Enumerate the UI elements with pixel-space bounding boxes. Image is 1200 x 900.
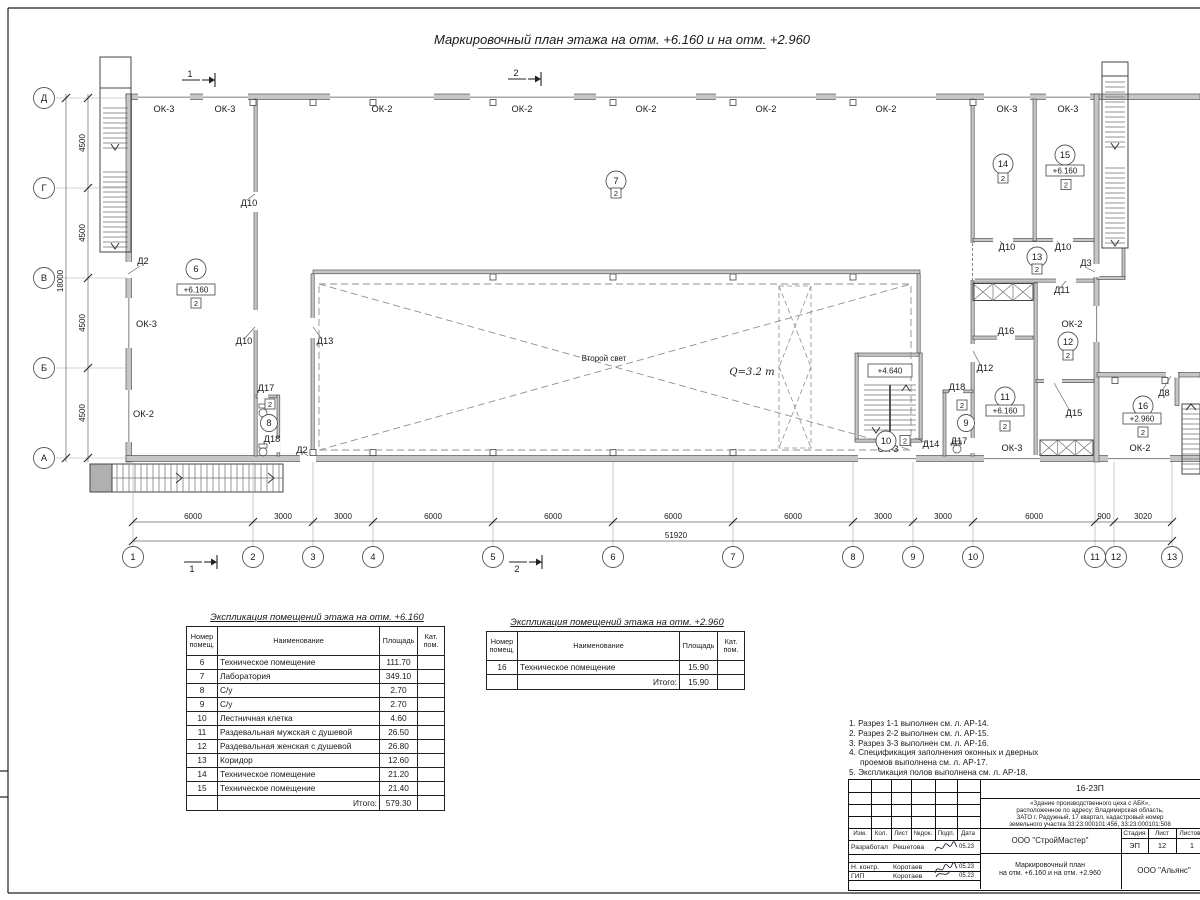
window-label: ОК-3 [997, 104, 1018, 114]
cell: 13 [187, 754, 218, 768]
cell: 2.70 [380, 684, 418, 698]
table-title: Экспликация помещений этажа на отм. +2.9… [486, 617, 748, 628]
cell [418, 796, 445, 811]
cell [187, 796, 218, 811]
grid-axis: 11 [1090, 552, 1100, 562]
col-header-name: Наименование [518, 632, 680, 661]
table-row: 12Раздевальная женская с душевой26.80 [187, 740, 445, 754]
section-mark: 1 [189, 564, 194, 574]
crane-capacity-label: Q=3.2 т [729, 367, 774, 378]
room-schedule-2960: Экспликация помещений этажа на отм. +2.9… [486, 617, 748, 690]
grid-axis: 9 [910, 552, 915, 562]
door-leaders [128, 194, 1171, 456]
col-header-name: Наименование [218, 627, 380, 656]
cell: 15.90 [680, 661, 718, 675]
cell [718, 675, 745, 690]
cell: 8 [187, 684, 218, 698]
dimension: 6000 [664, 512, 682, 521]
window-label: ОК-2 [876, 104, 897, 114]
window-label: ОК-3 [154, 104, 175, 114]
cell: Раздевальная мужская с душевой [218, 726, 380, 740]
table-row: 10Лестничная клетка4.60 [187, 712, 445, 726]
tb-date: 05.23 [959, 873, 974, 881]
second-light-label: Второй свет [582, 354, 627, 363]
col-header-area: Площадь [380, 627, 418, 656]
grid-axis: В [41, 273, 47, 283]
room-category: 2 [268, 400, 272, 409]
cell [418, 740, 445, 754]
room-elevation: +6.160 [1053, 167, 1078, 176]
cell: 11 [187, 726, 218, 740]
dimension: 3000 [274, 512, 292, 521]
tb-org2: ООО "Альянс" [1137, 867, 1191, 875]
window-label: ОК-2 [636, 104, 657, 114]
door-label: Д12 [977, 363, 994, 373]
grid-axis: 6 [610, 552, 615, 562]
room-category: 2 [1003, 422, 1007, 431]
tb-name: Коротаев [893, 873, 922, 881]
grid-axis: 10 [968, 552, 978, 562]
room-category: 2 [194, 299, 198, 308]
cell: 15 [187, 782, 218, 796]
grid-axis: Г [41, 183, 46, 193]
room-category: 2 [903, 436, 907, 445]
tb-org1: ООО "СтройМастер" [1011, 837, 1088, 845]
tb-sheet-header: Лист [1155, 830, 1169, 838]
room-category: 2 [1141, 428, 1145, 437]
door-label: Д8 [1158, 388, 1169, 398]
tb-sheets-value: 1 [1190, 842, 1194, 850]
dimension: 900 [1097, 512, 1111, 521]
dimension: 6000 [784, 512, 802, 521]
grid-axis: 5 [490, 552, 495, 562]
drawing-sheet: Маркировочный план этажа на отм. +6.160 … [0, 0, 1200, 900]
cell: Техническое помещение [218, 656, 380, 670]
tb-col-list: Лист [894, 830, 908, 838]
tb-sheet-value: 12 [1158, 842, 1166, 850]
door-label: Д17 [258, 383, 275, 393]
table-row: 7Лаборатория349.10 [187, 670, 445, 684]
cell: 21.40 [380, 782, 418, 796]
col-header-num: Номер помещ. [487, 632, 518, 661]
tb-col-data: Дата [961, 830, 975, 838]
cell: Техническое помещение [218, 782, 380, 796]
room-elevation: +6.160 [184, 286, 209, 295]
room-category: 2 [1066, 351, 1070, 360]
tb-col-ndok: №док. [914, 830, 932, 838]
col-header-cat: Кат. пом. [418, 627, 445, 656]
tb-name: Решетова [893, 844, 924, 852]
table-row: 16Техническое помещение15.90 [487, 661, 745, 675]
cell: 12.60 [380, 754, 418, 768]
cell: Техническое помещение [218, 768, 380, 782]
grid-axis: Д [41, 93, 48, 103]
room-category: 2 [960, 401, 964, 410]
notes-list: 1. Разрез 1-1 выполнен см. л. АР-14. 2. … [849, 719, 1179, 778]
tb-name: Коротаев [893, 864, 922, 872]
exterior-stair-bottom-right [1182, 404, 1200, 474]
door-labels: Д2 Д10 Д10 Д13 Д17 Д18 Д2 Д14 Д18 Д17 Д1… [137, 198, 1169, 455]
exterior-stair-bottom-left [90, 464, 283, 492]
table-total-row: Итого:579.30 [187, 796, 445, 811]
col-header-cat: Кат. пом. [718, 632, 745, 661]
table-title: Экспликация помещений этажа на отм. +6.1… [186, 612, 448, 623]
internal-stair-10: +4.640 [864, 364, 916, 433]
cell [418, 656, 445, 670]
dimension: 6000 [424, 512, 442, 521]
window-label: ОК-3 [1058, 104, 1079, 114]
door-label: Д10 [999, 242, 1016, 252]
door-label: Д10 [1055, 242, 1072, 252]
room-category: 2 [1001, 174, 1005, 183]
room-number: 6 [193, 264, 198, 274]
title-block: Изм. Кол. Лист №док. Подп. Дата Разработ… [848, 779, 1200, 891]
tb-drawing-name-line: Маркировочный план [1015, 862, 1085, 870]
room-category: 2 [614, 189, 618, 198]
door-label: Д15 [1066, 408, 1083, 418]
cell [418, 782, 445, 796]
dimension: 3000 [934, 512, 952, 521]
door-label: Д2 [296, 445, 307, 455]
grid-axis: 7 [730, 552, 735, 562]
room-category: 2 [1035, 265, 1039, 274]
dimension: 6000 [1025, 512, 1043, 521]
cell: 10 [187, 712, 218, 726]
window-label: ОК-3 [136, 319, 157, 329]
col-header-area: Площадь [680, 632, 718, 661]
tb-role: Разработал [851, 844, 888, 852]
total-label: Итого: [518, 675, 680, 690]
grid-axis: 1 [130, 552, 135, 562]
note-line: 5. Экспликация полов выполнена см. л. АР… [849, 768, 1179, 778]
window-label: ОК-2 [512, 104, 533, 114]
cell: С/у [218, 698, 380, 712]
pilaster-marks [250, 100, 1168, 456]
col-header-num: Номер помещ. [187, 627, 218, 656]
tb-col-izm: Изм. [853, 830, 867, 838]
grid-axis: А [41, 453, 48, 463]
window-label: ОК-2 [1062, 319, 1083, 329]
cell [418, 726, 445, 740]
tb-project-desc-line: земельного участка 33:23:000101:456, 33:… [1009, 821, 1171, 829]
tb-stage-header: Стадия [1123, 830, 1145, 838]
grid-axis: 4 [370, 552, 375, 562]
cell: Раздевальная женская с душевой [218, 740, 380, 754]
grid-axis: Б [41, 363, 47, 373]
room-number: 11 [1000, 392, 1010, 402]
cell: 111.70 [380, 656, 418, 670]
note-line: 2. Разрез 2-2 выполнен см. л. АР-15. [849, 729, 1179, 739]
tb-col-podp: Подп. [938, 830, 955, 838]
window-label: ОК-2 [133, 409, 154, 419]
tb-stage-value: ЭП [1129, 842, 1140, 850]
cell: 21.20 [380, 768, 418, 782]
exterior-walls [126, 94, 1200, 462]
signature [933, 860, 958, 880]
dimension: 4500 [78, 404, 87, 422]
door-label: Д16 [998, 326, 1015, 336]
grid-axis: 8 [850, 552, 855, 562]
cell: 12 [187, 740, 218, 754]
stair-elevation-label: +4.640 [878, 367, 903, 376]
table-row: 13Коридор12.60 [187, 754, 445, 768]
room-elevation: +6.160 [993, 407, 1018, 416]
grid-axis: 3 [310, 552, 315, 562]
room-number: 10 [881, 436, 891, 446]
cell [418, 670, 445, 684]
stair-tower-right [1102, 62, 1128, 248]
cell: 14 [187, 768, 218, 782]
room-number: 14 [998, 159, 1008, 169]
cell [418, 768, 445, 782]
table-row: 14Техническое помещение21.20 [187, 768, 445, 782]
total-value: 15.90 [680, 675, 718, 690]
door-label: Д10 [236, 336, 253, 346]
room-category: 2 [1064, 180, 1068, 189]
table-row: 15Техническое помещение21.40 [187, 782, 445, 796]
room-schedule-6160: Экспликация помещений этажа на отм. +6.1… [186, 612, 448, 811]
cell [418, 754, 445, 768]
cell: Лестничная клетка [218, 712, 380, 726]
door-label: Д10 [241, 198, 258, 208]
cell: Коридор [218, 754, 380, 768]
table-row: 8С/у2.70 [187, 684, 445, 698]
door-label: Д13 [317, 336, 334, 346]
room-number: 7 [613, 176, 618, 186]
cell: С/у [218, 684, 380, 698]
table-row: 11Раздевальная мужская с душевой26.50 [187, 726, 445, 740]
window-label: ОК-3 [215, 104, 236, 114]
window-label: ОК-3 [1002, 443, 1023, 453]
tb-sheets-header: Листов [1179, 830, 1200, 838]
cell [418, 712, 445, 726]
dimension: 6000 [544, 512, 562, 521]
cell: 16 [487, 661, 518, 675]
cell [418, 698, 445, 712]
dimension: 3020 [1134, 512, 1152, 521]
dimension: 6000 [184, 512, 202, 521]
dimension: 4500 [78, 224, 87, 242]
cell [487, 675, 518, 690]
section-marks: 1 2 1 2 [182, 68, 542, 574]
drawing-title: Маркировочный план этажа на отм. +6.160 … [434, 32, 811, 47]
cell: Техническое помещение [518, 661, 680, 675]
room-number: 15 [1060, 150, 1070, 160]
tb-role: Н. контр. [851, 864, 879, 872]
tb-role: ГИП [851, 873, 864, 881]
tb-doc-number: 16-23П [1076, 785, 1104, 793]
table-row: 6Техническое помещение111.70 [187, 656, 445, 670]
note-line: проемов выполнена см. л. АР-17. [849, 758, 1179, 768]
door-label: Д2 [137, 256, 148, 266]
room-number: 8 [266, 418, 271, 428]
note-line: 4. Спецификация заполнения оконных и две… [849, 748, 1179, 758]
cell: 4.60 [380, 712, 418, 726]
door-label: Д17 [951, 436, 968, 446]
room-number: 13 [1032, 252, 1042, 262]
crane-zone [779, 286, 811, 448]
section-mark: 2 [514, 564, 519, 574]
signature [933, 840, 958, 855]
section-mark: 2 [513, 68, 518, 78]
room-number: 12 [1063, 337, 1073, 347]
room-elevation: +2.960 [1130, 415, 1155, 424]
cell: Лаборатория [218, 670, 380, 684]
cell: 2.70 [380, 698, 418, 712]
window-label: ОК-2 [756, 104, 777, 114]
table-total-row: Итого:15.90 [487, 675, 745, 690]
room-number: 9 [963, 418, 968, 428]
cell: 26.80 [380, 740, 418, 754]
dimension-total: 18000 [56, 269, 65, 292]
grid-axis: 13 [1167, 552, 1177, 562]
cell [718, 661, 745, 675]
second-light-area: Второй свет Q=3.2 т [319, 284, 911, 450]
total-value: 579.30 [380, 796, 418, 811]
note-line: 1. Разрез 1-1 выполнен см. л. АР-14. [849, 719, 1179, 729]
dimension: 3000 [874, 512, 892, 521]
table-row: 9С/у2.70 [187, 698, 445, 712]
grid-axis: 2 [250, 552, 255, 562]
door-label: Д14 [923, 439, 940, 449]
door-label: Д11 [1054, 285, 1070, 295]
tb-col-kol: Кол. [875, 830, 887, 838]
cell: 349.10 [380, 670, 418, 684]
tb-date: 05.23 [959, 864, 974, 872]
tb-drawing-name-line: на отм. +6.160 и на отм. +2.960 [999, 870, 1101, 878]
door-label: Д18 [264, 434, 281, 444]
cell: 7 [187, 670, 218, 684]
dimension: 3000 [334, 512, 352, 521]
room-markers: 6 +6.160 2 7 2 2 8 2 9 10 2 11 +6.160 2 … [177, 145, 1161, 451]
tb-date: 05.23 [959, 844, 974, 852]
room-number: 16 [1138, 401, 1148, 411]
cell: 26.50 [380, 726, 418, 740]
cell: 9 [187, 698, 218, 712]
grid-axis: 12 [1111, 552, 1121, 562]
dimension: 4500 [78, 134, 87, 152]
door-label: Д3 [1080, 258, 1091, 268]
door-label: Д18 [949, 382, 966, 392]
note-line: 3. Разрез 3-3 выполнен см. л. АР-16. [849, 739, 1179, 749]
window-label: ОК-2 [1130, 443, 1151, 453]
window-label: ОК-2 [372, 104, 393, 114]
cell [418, 684, 445, 698]
dimension: 4500 [78, 314, 87, 332]
cell: 6 [187, 656, 218, 670]
dimension-total: 51920 [665, 531, 688, 540]
section-mark: 1 [187, 69, 192, 79]
total-label: Итого: [218, 796, 380, 811]
